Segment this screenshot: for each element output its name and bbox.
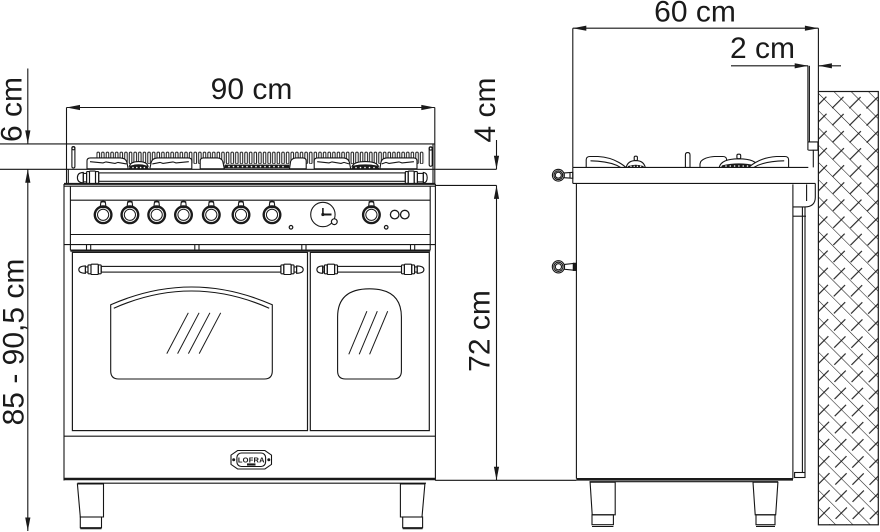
svg-text:6 cm: 6 cm — [0, 77, 29, 142]
svg-text:72 cm: 72 cm — [464, 290, 497, 372]
svg-text:2 cm: 2 cm — [730, 32, 795, 65]
svg-text:4 cm: 4 cm — [469, 77, 502, 142]
svg-text:LOFRA: LOFRA — [238, 455, 265, 464]
svg-text:60 cm: 60 cm — [654, 0, 736, 29]
svg-text:90 cm: 90 cm — [211, 73, 293, 106]
svg-text:85 - 90,5 cm: 85 - 90,5 cm — [0, 259, 31, 426]
